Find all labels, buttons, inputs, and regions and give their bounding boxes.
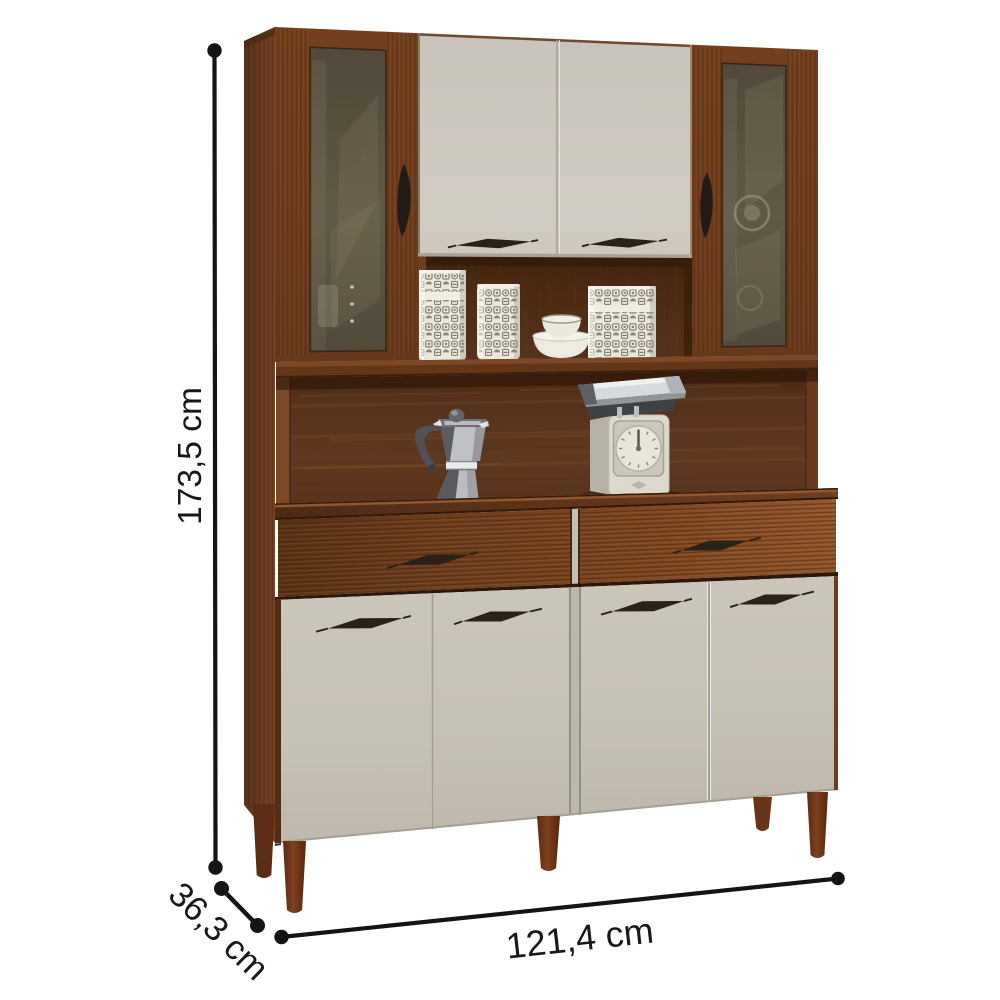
svg-text:173,5 cm: 173,5 cm — [172, 387, 209, 525]
